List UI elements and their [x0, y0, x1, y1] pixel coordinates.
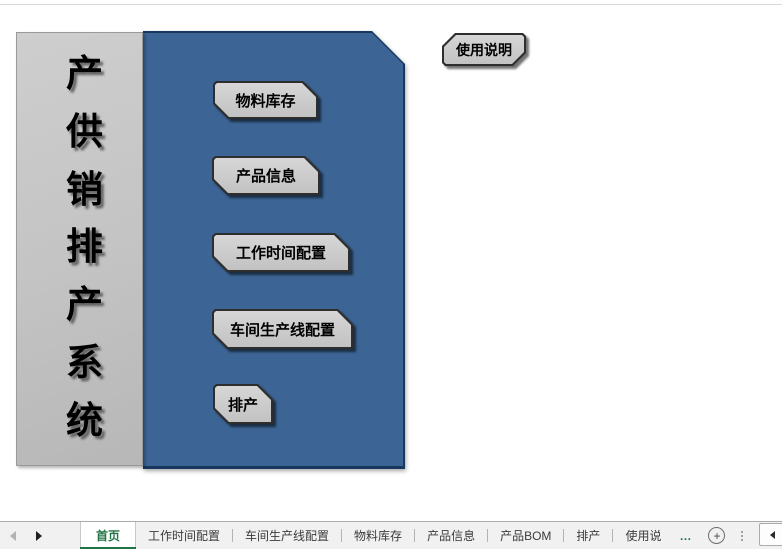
product-info-button[interactable]: 产品信息 — [212, 156, 320, 195]
sheet-nav-right-button[interactable] — [26, 522, 52, 549]
chevron-left-icon — [10, 531, 16, 541]
button-label: 车间生产线配置 — [230, 319, 335, 340]
usage-instructions-button[interactable]: 使用说明 — [442, 33, 526, 66]
button-label: 工作时间配置 — [236, 242, 326, 263]
material-inventory-button[interactable]: 物料库存 — [213, 81, 318, 119]
excel-home-sheet: 产 供 销 排 产 系 统 物料库存 产品信息 工作时间配置 车间生产线配置 — [0, 0, 782, 549]
sheet-tab-workshop-line-config[interactable]: 车间生产线配置 — [233, 522, 341, 549]
tabbar-splitter-grip-icon[interactable] — [741, 531, 743, 541]
sheet-tab-bar: 首页 工作时间配置 车间生产线配置 物料库存 产品信息 产品BOM 排产 使用说… — [0, 521, 782, 549]
sheet-tab-scheduling[interactable]: 排产 — [564, 522, 612, 549]
sheet-tab-home[interactable]: 首页 — [80, 522, 136, 549]
workshop-line-config-button[interactable]: 车间生产线配置 — [212, 309, 353, 349]
button-label: 产品信息 — [236, 165, 296, 186]
title-char: 系 — [66, 344, 103, 381]
button-label: 物料库存 — [235, 90, 295, 111]
chevron-right-icon — [36, 531, 42, 541]
sheet-tab-product-bom[interactable]: 产品BOM — [488, 522, 563, 549]
sheet-tab-material-inventory[interactable]: 物料库存 — [342, 522, 414, 549]
title-char: 排 — [66, 228, 103, 265]
button-face: 车间生产线配置 — [214, 311, 351, 347]
button-label: 使用说明 — [456, 40, 512, 60]
title-char: 统 — [66, 402, 103, 439]
work-time-config-button[interactable]: 工作时间配置 — [212, 233, 350, 272]
sheet-tab-work-time-config[interactable]: 工作时间配置 — [136, 522, 232, 549]
add-sheet-button[interactable]: + — [708, 527, 725, 544]
button-face: 工作时间配置 — [214, 235, 348, 270]
button-face: 物料库存 — [215, 83, 316, 117]
sheet-tab-usage-truncated[interactable]: 使用说 — [613, 522, 673, 549]
sheet-nav-left-button[interactable] — [0, 522, 26, 549]
ribbon-bottom-divider — [0, 4, 782, 5]
scheduling-button[interactable]: 排产 — [213, 384, 273, 424]
button-label: 排产 — [228, 394, 258, 415]
tab-spacer — [52, 522, 80, 549]
sheet-tab-product-info[interactable]: 产品信息 — [415, 522, 487, 549]
system-title-banner: 产 供 销 排 产 系 统 — [16, 32, 143, 466]
title-char: 产 — [66, 55, 103, 92]
hscroll-left-button[interactable] — [759, 523, 782, 546]
scroll-left-icon — [770, 531, 775, 539]
title-char: 产 — [66, 286, 103, 323]
button-face: 使用说明 — [444, 35, 524, 64]
button-face: 产品信息 — [214, 158, 318, 193]
title-char: 供 — [66, 113, 103, 150]
more-sheets-indicator[interactable]: … — [673, 522, 698, 549]
title-char: 销 — [66, 171, 103, 208]
